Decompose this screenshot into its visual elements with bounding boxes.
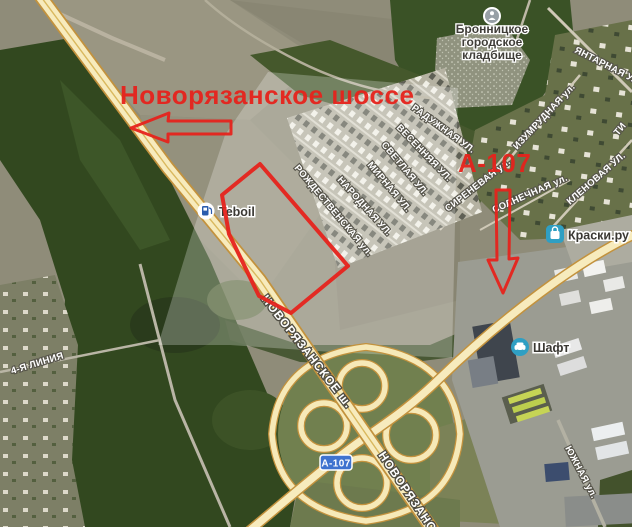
cemetery-label-line1: Бронницкое [456, 22, 529, 36]
cemetery-icon-disc [485, 9, 499, 23]
poi-shaft[interactable]: Шафт [511, 338, 569, 356]
shaft-label: Шафт [533, 341, 569, 355]
car-roof-glyph [517, 343, 524, 347]
map-screenshot: РАДУЖНАЯ УЛ. ВЕСЕННЯЯ УЛ. СВЕТЛАЯ УЛ. МИ… [0, 0, 632, 527]
cemetery-label-line2: городское [462, 35, 523, 49]
car-wheel-glyph [521, 350, 524, 353]
fuel-pump-glyph [202, 206, 209, 216]
car-wheel-glyph [516, 350, 519, 353]
satellite-map-canvas[interactable]: РАДУЖНАЯ УЛ. ВЕСЕННЯЯ УЛ. СВЕТЛАЯ УЛ. МИ… [0, 0, 632, 527]
road-badge-a107[interactable]: А-107 [320, 455, 352, 470]
poi-kraski[interactable]: Краски.ру [546, 225, 629, 243]
annotation-highway-text: Новорязанское шоссе [120, 80, 414, 110]
kraski-label: Краски.ру [568, 229, 629, 243]
road-badge-text: А-107 [321, 459, 350, 470]
fuel-pump-window [203, 208, 207, 211]
bag-glyph [551, 231, 560, 239]
cemetery-label-line3: кладбище [462, 48, 522, 62]
annotation-a107-text: А-107 [458, 148, 531, 178]
cemetery-icon-head [490, 11, 494, 15]
